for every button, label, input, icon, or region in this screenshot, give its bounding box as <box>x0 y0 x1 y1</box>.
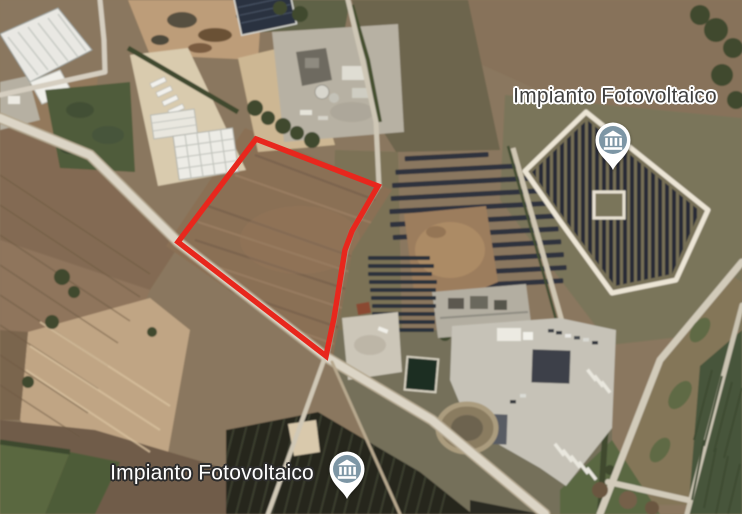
pond <box>405 357 439 393</box>
placemark-label[interactable]: Impianto Fotovoltaico <box>110 461 314 484</box>
industrial-plant <box>272 24 404 142</box>
satellite-imagery <box>0 0 742 514</box>
pin-circle <box>599 126 627 154</box>
placemark-label[interactable]: Impianto Fotovoltaico <box>513 84 717 107</box>
placemark-pin[interactable] <box>593 120 633 172</box>
map-canvas[interactable]: Impianto Fotovoltaico Impianto Fotovolta… <box>0 0 742 514</box>
placemark-pin[interactable] <box>327 449 367 501</box>
red-roof-hut <box>356 302 371 315</box>
